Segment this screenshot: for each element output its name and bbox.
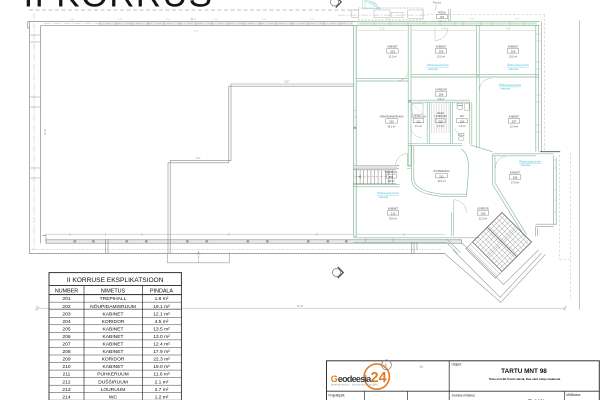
svg-text:205: 205 xyxy=(439,50,444,54)
svg-text:214: 214 xyxy=(460,120,465,123)
svg-text:4.97: 4.97 xyxy=(195,156,201,160)
svg-text:1.2 m²: 1.2 m² xyxy=(459,125,466,128)
svg-text:2.7 m²: 2.7 m² xyxy=(437,125,444,128)
svg-text:1.2 m²: 1.2 m² xyxy=(155,394,169,400)
svg-text:siseosa: siseosa xyxy=(428,67,438,71)
svg-text:KABINET: KABINET xyxy=(436,45,447,48)
svg-text:PUHKERUUM: PUHKERUUM xyxy=(97,372,129,378)
svg-text:4.5 m²: 4.5 m² xyxy=(155,319,169,325)
svg-text:KORIDOR: KORIDOR xyxy=(477,207,489,210)
svg-text:211: 211 xyxy=(63,372,71,378)
svg-text:206: 206 xyxy=(511,50,516,54)
svg-text:Mõõtkava:: Mõõtkava: xyxy=(566,393,581,397)
svg-text:KORIDOR: KORIDOR xyxy=(435,88,447,91)
svg-text:KABINET: KABINET xyxy=(508,45,519,48)
svg-text:12.4 m²: 12.4 m² xyxy=(153,342,170,348)
svg-text:NUMBER: NUMBER xyxy=(55,288,78,294)
svg-text:202: 202 xyxy=(389,120,394,124)
svg-text:12.4 m²: 12.4 m² xyxy=(510,125,518,128)
svg-text:207: 207 xyxy=(62,342,70,348)
svg-text:17.9 m²: 17.9 m² xyxy=(511,181,519,184)
svg-text:207: 207 xyxy=(512,120,517,124)
svg-text:KABINET: KABINET xyxy=(103,349,124,355)
svg-text:201: 201 xyxy=(62,296,70,302)
svg-text:210: 210 xyxy=(62,364,70,370)
svg-text:maakorraldus · geodeesia · pro: maakorraldus · geodeesia · projekt xyxy=(331,384,378,387)
svg-text:Projektijuht:: Projektijuht: xyxy=(329,394,346,398)
svg-text:12.1 m²: 12.1 m² xyxy=(153,311,170,317)
svg-text:DUŠŠIRUUM: DUŠŠIRUUM xyxy=(411,115,425,118)
svg-text:5.44: 5.44 xyxy=(442,28,447,31)
svg-text:LOURUUM: LOURUUM xyxy=(435,116,447,118)
svg-text:22.3 m²: 22.3 m² xyxy=(479,217,487,220)
svg-text:1.8 m²: 1.8 m² xyxy=(388,180,395,183)
svg-text:siseosa: siseosa xyxy=(379,195,389,199)
svg-text:13.5 m²: 13.5 m² xyxy=(437,55,445,58)
svg-text:TREPIHALL: TREPIHALL xyxy=(384,171,398,174)
svg-text:209: 209 xyxy=(62,357,70,363)
svg-text:22.3 m²: 22.3 m² xyxy=(153,357,170,363)
svg-text:TARTU MNT 98: TARTU MNT 98 xyxy=(501,368,547,375)
svg-text:11.6 m²: 11.6 m² xyxy=(153,372,170,378)
svg-text:203: 203 xyxy=(62,311,70,317)
svg-text:2.1 m²: 2.1 m² xyxy=(155,379,169,385)
svg-text:19.0 m²: 19.0 m² xyxy=(389,217,397,220)
svg-text:eodeesia: eodeesia xyxy=(338,374,372,384)
svg-text:13.45: 13.45 xyxy=(43,128,47,135)
svg-text:siseosa: siseosa xyxy=(509,67,519,71)
svg-text:KABINET: KABINET xyxy=(103,364,124,370)
svg-text:13.0 m²: 13.0 m² xyxy=(509,55,517,58)
svg-text:209: 209 xyxy=(481,212,486,216)
svg-text:WC: WC xyxy=(460,116,464,118)
svg-text:KABINET: KABINET xyxy=(103,334,124,340)
svg-text:TREPIHALL: TREPIHALL xyxy=(100,296,127,302)
svg-text:KORIDOR: KORIDOR xyxy=(102,319,125,325)
svg-text:KABINET: KABINET xyxy=(510,171,521,174)
svg-text:Tartu mnt 98, Peetri alevik, R: Tartu mnt 98, Peetri alevik, Rae vald, H… xyxy=(489,377,561,381)
svg-text:202: 202 xyxy=(62,304,70,310)
svg-text:203: 203 xyxy=(390,50,395,54)
svg-text:Objekt:: Objekt: xyxy=(452,362,462,366)
svg-text:siseosa: siseosa xyxy=(501,87,511,91)
svg-text:WC: WC xyxy=(109,394,118,400)
svg-text:8.87: 8.87 xyxy=(284,80,290,84)
svg-text:19.1 m²: 19.1 m² xyxy=(387,125,395,128)
svg-text:KABINET: KABINET xyxy=(388,207,399,210)
svg-text:Riiulid: Riiulid xyxy=(437,113,444,115)
svg-text:204: 204 xyxy=(439,93,444,97)
svg-text:206: 206 xyxy=(62,334,70,340)
svg-text:KABINET: KABINET xyxy=(103,342,124,348)
svg-text:13.0 m²: 13.0 m² xyxy=(153,334,170,340)
svg-text:II KORRUS: II KORRUS xyxy=(24,0,214,14)
svg-text:212: 212 xyxy=(62,379,70,385)
svg-text:2.7 m²: 2.7 m² xyxy=(155,387,169,393)
svg-text:212: 212 xyxy=(416,120,421,123)
svg-text:NÕUPIDAMISRUUM: NÕUPIDAMISRUUM xyxy=(90,303,136,310)
svg-text:205: 205 xyxy=(62,326,70,332)
svg-text:208: 208 xyxy=(62,349,70,355)
svg-text:KABINET: KABINET xyxy=(103,311,124,317)
svg-text:II KORRUSE EKSPLIKATSIOON: II KORRUSE EKSPLIKATSIOON xyxy=(67,277,164,284)
svg-text:Joonise nimetus:: Joonise nimetus: xyxy=(452,394,476,398)
svg-text:201: 201 xyxy=(389,175,394,179)
svg-text:5.10: 5.10 xyxy=(380,28,385,31)
svg-text:19.0 m²: 19.0 m² xyxy=(153,364,170,370)
svg-text:208: 208 xyxy=(513,176,518,180)
svg-text:210: 210 xyxy=(391,212,396,216)
svg-text:204: 204 xyxy=(62,319,70,325)
svg-text:KABINET: KABINET xyxy=(387,45,398,48)
svg-text:211: 211 xyxy=(439,174,444,178)
svg-text:KABINET: KABINET xyxy=(103,326,124,332)
svg-text:11.6 m²: 11.6 m² xyxy=(437,180,445,183)
svg-text:213: 213 xyxy=(62,387,70,393)
svg-text:4.5 m²: 4.5 m² xyxy=(438,98,445,101)
svg-text:KABINET: KABINET xyxy=(509,115,520,118)
svg-text:G: G xyxy=(331,374,338,384)
svg-text:13.5 m²: 13.5 m² xyxy=(153,326,170,332)
svg-text:32.2: 32.2 xyxy=(190,17,196,21)
svg-text:siseosa: siseosa xyxy=(521,163,531,167)
svg-text:36.10: 36.10 xyxy=(297,304,304,308)
svg-text:7.04: 7.04 xyxy=(506,28,511,31)
svg-text:17.9 m²: 17.9 m² xyxy=(153,349,170,355)
svg-text:1.8 m²: 1.8 m² xyxy=(155,296,169,302)
svg-text:12.1 m²: 12.1 m² xyxy=(388,55,396,58)
svg-text:19.1 m²: 19.1 m² xyxy=(153,304,170,310)
svg-text:PINDALA: PINDALA xyxy=(150,288,173,294)
svg-text:2.1 m²: 2.1 m² xyxy=(415,125,422,128)
svg-text:Pandus: Pandus xyxy=(433,1,442,4)
svg-text:213: 213 xyxy=(438,120,443,123)
svg-text:KORIDOR: KORIDOR xyxy=(102,357,125,363)
svg-text:NIMETUS: NIMETUS xyxy=(101,288,126,294)
svg-text:DUŠŠIRUUM: DUŠŠIRUUM xyxy=(98,378,128,385)
svg-text:PUHKERUUM: PUHKERUUM xyxy=(434,170,450,173)
svg-text:214: 214 xyxy=(62,394,70,400)
svg-text:LOURUUM: LOURUUM xyxy=(101,387,126,393)
